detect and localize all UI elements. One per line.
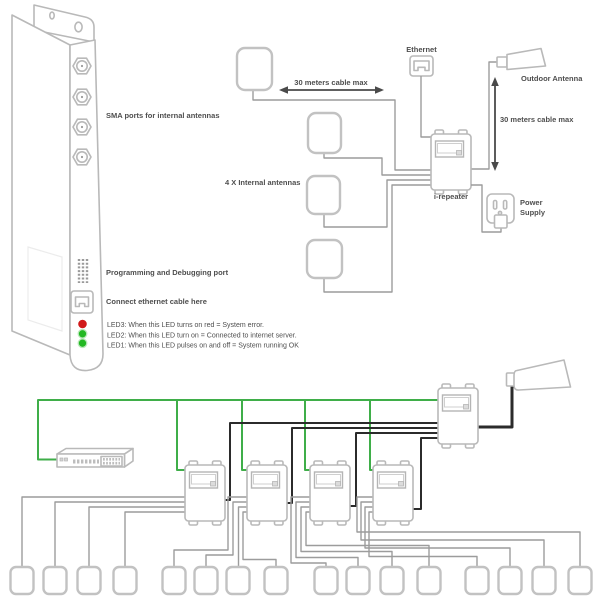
- outdoor-cable: [471, 62, 497, 169]
- ceiling-antenna-icon: [195, 567, 218, 594]
- ceiling-antenna-icon: [78, 567, 101, 594]
- sma-port-icon: [73, 119, 91, 135]
- led1-green-icon: [78, 339, 87, 348]
- outdoor-antenna-top: Outdoor Antenna: [471, 49, 583, 170]
- ethernet-cable: [421, 76, 431, 137]
- programming-port-label: Programming and Debugging port: [106, 268, 229, 277]
- sma-port-icon: [73, 89, 91, 105]
- ceiling-antenna-icon: [315, 567, 338, 594]
- ceiling-antenna-icon: [418, 567, 441, 594]
- led3-label: LED3: When this LED turns on red = Syste…: [107, 322, 264, 329]
- patch-antenna-icon: [237, 48, 272, 90]
- ceiling-antennas: [11, 567, 592, 594]
- ethernet-connector: Ethernet: [406, 45, 437, 137]
- repeater-box-icon: [185, 461, 225, 525]
- unit-side-panel: [12, 15, 70, 355]
- internal-antennas-label: 4 X Internal antennas: [225, 178, 300, 187]
- patch-antenna-icon: [307, 176, 340, 214]
- ceiling-antenna-icon: [381, 567, 404, 594]
- horizontal-cable-arrow: 30 meters cable max: [279, 78, 384, 94]
- diagram-canvas: SMA ports for internal antennas Programm…: [0, 0, 600, 600]
- i-repeater-unit: i-repeater: [431, 130, 471, 201]
- donor-antenna-cable: [478, 383, 512, 427]
- repeater-box-icon: [438, 384, 478, 448]
- ceiling-antenna-icon: [499, 567, 522, 594]
- antenna-feed-lines: [22, 497, 580, 567]
- ceiling-antenna-icon: [44, 567, 67, 594]
- led2-green-icon: [78, 330, 87, 339]
- ceiling-antenna-icon: [11, 567, 34, 594]
- outdoor-antenna-label: Outdoor Antenna: [521, 74, 583, 83]
- bracket-hole: [75, 22, 82, 32]
- ceiling-antenna-icon: [163, 567, 186, 594]
- cable-max-label-horizontal: 30 meters cable max: [294, 78, 368, 87]
- repeater-box-icon: [310, 461, 350, 525]
- led2-label: LED2: When this LED turn on = Connected …: [107, 333, 297, 340]
- ceiling-antenna-icon: [569, 567, 592, 594]
- sma-ports-label: SMA ports for internal antennas: [106, 111, 220, 120]
- power-supply-label-line1: Power: [520, 198, 543, 207]
- donor-antenna: [507, 360, 571, 390]
- ceiling-antenna-icon: [114, 567, 137, 594]
- patch-antenna-icon: [308, 113, 341, 153]
- cable-max-label-vertical: 30 meters cable max: [500, 115, 574, 124]
- rack-switch-icon: [57, 449, 133, 468]
- ceiling-antenna-icon: [227, 567, 250, 594]
- antenna-mount: [497, 57, 507, 67]
- ethernet-cable-label: Connect ethernet cable here: [106, 297, 207, 306]
- sub-repeaters: [185, 461, 413, 525]
- ceiling-antenna-icon: [265, 567, 288, 594]
- vertical-cable-arrow: 30 meters cable max: [491, 77, 574, 171]
- ceiling-antenna-icon: [533, 567, 556, 594]
- yagi-antenna-icon: [507, 49, 546, 70]
- yagi-antenna-icon: [514, 360, 571, 390]
- bracket-hole: [50, 12, 54, 19]
- repeater-box-icon: [431, 130, 471, 194]
- sma-port-icon: [73, 58, 91, 74]
- led3-red-icon: [78, 320, 87, 329]
- i-repeater-label: i-repeater: [434, 192, 468, 201]
- patch-antenna-icon: [307, 240, 342, 278]
- installation-diagram: SMA ports for internal antennas Programm…: [0, 0, 600, 600]
- power-supply: Power Supply: [471, 185, 546, 232]
- repeater-box-icon: [247, 461, 287, 525]
- sma-port-icon: [73, 149, 91, 165]
- indoor-unit: [12, 5, 103, 371]
- main-repeater: [438, 384, 478, 448]
- led1-label: LED1: When this LED pulses on and off = …: [107, 343, 299, 350]
- antenna-cable: [324, 153, 431, 175]
- repeater-box-icon: [373, 461, 413, 525]
- ceiling-antenna-icon: [466, 567, 489, 594]
- rj45-jack-icon: [71, 291, 93, 313]
- power-supply-label-line2: Supply: [520, 208, 546, 217]
- power-plug-icon: [495, 215, 508, 228]
- ethernet-label: Ethernet: [406, 45, 437, 54]
- ceiling-antenna-icon: [347, 567, 370, 594]
